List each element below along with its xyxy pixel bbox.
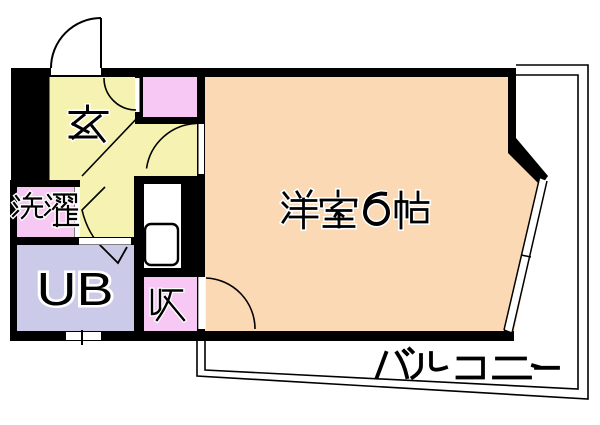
svg-text:UB: UB	[37, 263, 114, 315]
